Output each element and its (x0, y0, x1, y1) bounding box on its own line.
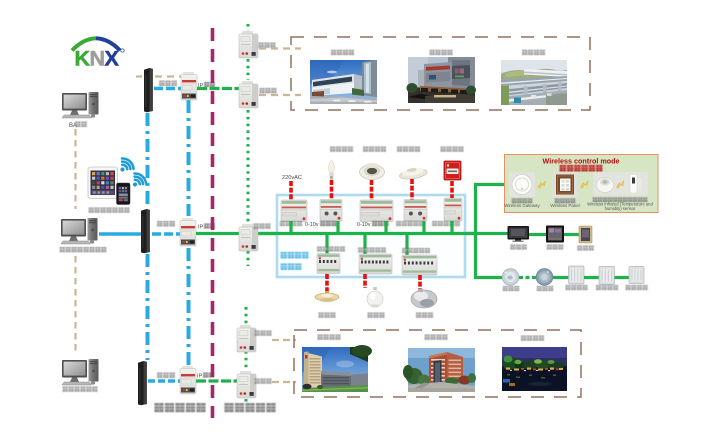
svg-text:IP: IP (198, 225, 204, 231)
svg-text:0-10v: 0-10v (357, 222, 371, 228)
svg-text:N: N (90, 47, 106, 71)
svg-text:Wireless control mode: Wireless control mode (542, 157, 619, 166)
svg-text:220vAC: 220vAC (282, 175, 302, 181)
svg-text:humidity) sensor: humidity) sensor (605, 206, 636, 211)
svg-text:X: X (105, 47, 120, 71)
svg-text:Wireless Gateway: Wireless Gateway (504, 203, 540, 208)
svg-text:Wireless Panel: Wireless Panel (550, 203, 579, 208)
svg-text:K: K (75, 47, 91, 71)
svg-text:0-10v: 0-10v (305, 222, 319, 228)
svg-text:IP: IP (197, 374, 203, 380)
